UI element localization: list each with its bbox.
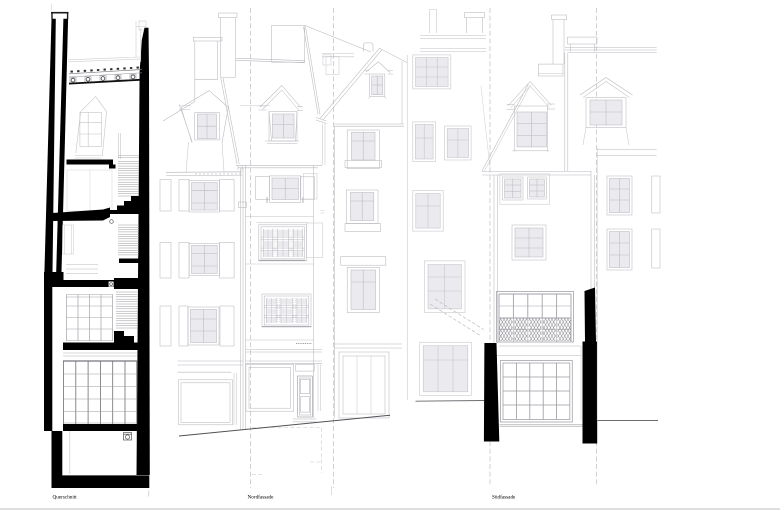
svg-text:Querschnitt: Querschnitt — [53, 495, 78, 501]
svg-text:Nordfassade: Nordfassade — [248, 494, 275, 501]
svg-text:Südfassade: Südfassade — [492, 494, 516, 501]
